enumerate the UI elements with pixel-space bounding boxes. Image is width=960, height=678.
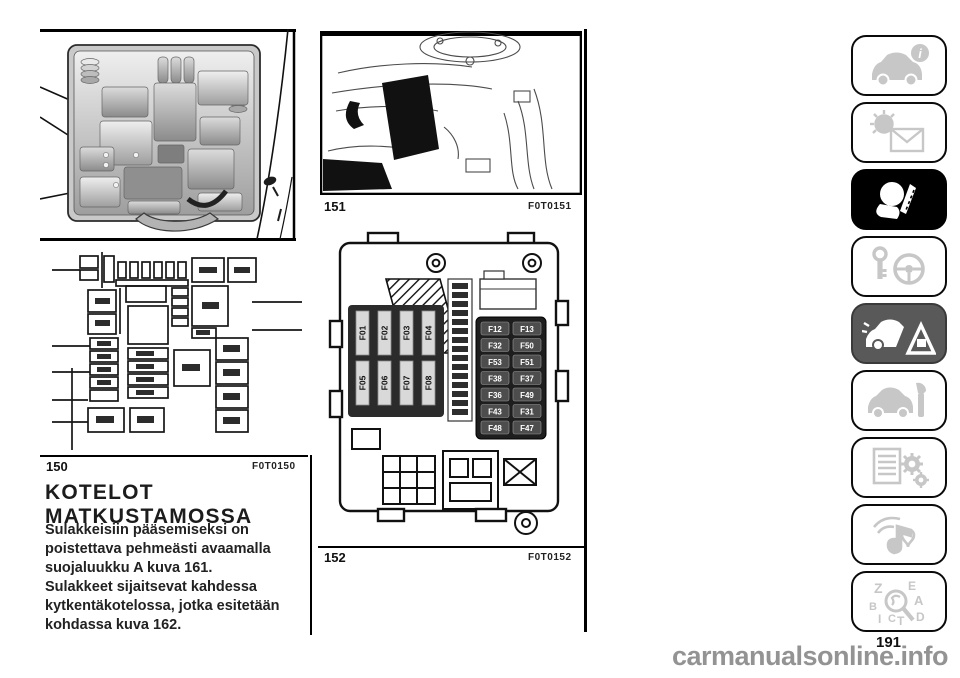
fuse-label: F32 xyxy=(488,342,502,351)
multimedia-icon xyxy=(864,511,934,559)
sidebar-item-service[interactable] xyxy=(851,370,947,431)
fuse-label: F12 xyxy=(488,325,502,334)
paragraph-line: Sulakkeet sijaitsevat kahdessa xyxy=(45,578,290,597)
section-paragraph: Sulakkeisiin pääsemiseksi on poistettava… xyxy=(45,521,290,635)
caption-rule-150 xyxy=(40,455,308,457)
fuse-label: F01 xyxy=(358,325,368,340)
fuse-label: F07 xyxy=(402,375,412,390)
index-letter: E xyxy=(908,579,916,593)
watermark-link[interactable]: carmanualsonline.info xyxy=(672,641,948,672)
index-letter: C xyxy=(888,613,896,625)
dashboard-underside-drawing xyxy=(320,31,582,195)
caption-rule-152 xyxy=(318,546,584,548)
sidebar-item-lights-messages[interactable] xyxy=(851,102,947,163)
column-divider-left xyxy=(310,455,312,635)
sidebar-item-technical-data[interactable] xyxy=(851,437,947,498)
fuse-label: F08 xyxy=(424,375,434,390)
fuse-label: F31 xyxy=(520,408,534,417)
info-badge-letter: i xyxy=(918,46,922,61)
paragraph-line: Sulakkeisiin pääsemiseksi on xyxy=(45,521,290,540)
manual-page: 150 F0T0150 KOTELOT MATKUSTAMOSSA Sulakk… xyxy=(0,0,960,678)
fuse-label: F37 xyxy=(520,375,534,384)
service-wrench-icon xyxy=(864,377,934,425)
paragraph-line: suojaluukku A kuva 161. xyxy=(45,559,290,578)
paragraph-line: poistettava pehmeästi avaamalla xyxy=(45,540,290,559)
fuse-label: F49 xyxy=(520,391,534,400)
sidebar-item-safety[interactable] xyxy=(851,169,947,230)
sidebar-item-starting-driving[interactable] xyxy=(851,236,947,297)
sidebar-item-index[interactable]: Z E B A C T D I xyxy=(851,571,947,632)
fuse-label: F50 xyxy=(520,342,534,351)
index-letter: I xyxy=(878,612,881,626)
index-letter: D xyxy=(916,610,925,624)
technical-data-icon xyxy=(864,444,934,492)
fuse-label: F05 xyxy=(358,375,368,390)
paragraph-line: kytkentäkotelossa, jotka esitetään xyxy=(45,597,290,616)
lights-messages-icon xyxy=(864,109,934,157)
figure-code-152: F0T0152 xyxy=(528,552,572,563)
fuse-label: F03 xyxy=(402,325,412,340)
fuse-label: F48 xyxy=(488,424,502,433)
paragraph-line: kohdassa kuva 162. xyxy=(45,616,290,635)
index-letter: A xyxy=(914,593,924,608)
fuse-label: F47 xyxy=(520,424,534,433)
index-letter: B xyxy=(869,601,877,613)
fuse-label: F04 xyxy=(424,325,434,340)
index-letter: T xyxy=(897,614,905,627)
ignition-steering-icon xyxy=(864,243,934,291)
passenger-fusebox-diagram: F01 F02 F03 F04 F05 F06 F07 F08 xyxy=(328,221,580,545)
sidebar-item-emergency[interactable] xyxy=(851,303,947,364)
figure-code-150: F0T0150 xyxy=(252,461,296,472)
car-info-icon: i xyxy=(864,42,934,90)
figure-code-151: F0T0151 xyxy=(528,201,572,212)
fuse-label: F53 xyxy=(488,358,502,367)
fuse-label: F38 xyxy=(488,375,502,384)
index-letter: Z xyxy=(874,580,883,596)
figure-number-152: 152 xyxy=(324,550,346,565)
safety-airbag-icon xyxy=(864,176,934,224)
emergency-icon xyxy=(862,309,936,359)
right-fuse-block: F12 F13 F32 F50 F53 F51 F38 F37 F36 F49 … xyxy=(476,317,546,439)
figure-number-151: 151 xyxy=(324,199,346,214)
alphabetical-index-icon: Z E B A C T D I xyxy=(864,577,934,627)
column-divider-middle xyxy=(584,29,587,632)
sidebar-item-vehicle-info[interactable]: i xyxy=(851,35,947,96)
engine-fusebox-schematic xyxy=(52,250,302,452)
figure-number-150: 150 xyxy=(46,459,68,474)
fuse-label: F06 xyxy=(380,375,390,390)
section-title-line1: KOTELOT xyxy=(45,481,252,505)
fuse-label: F43 xyxy=(488,408,502,417)
fuse-label: F13 xyxy=(520,325,534,334)
sidebar-item-multimedia[interactable] xyxy=(851,504,947,565)
engine-fusebox-illustration xyxy=(40,29,296,241)
left-fuse-block: F01 F02 F03 F04 F05 F06 F07 F08 xyxy=(348,305,444,417)
fuse-label: F36 xyxy=(488,391,502,400)
fuse-label: F02 xyxy=(380,325,390,340)
fuse-label: F51 xyxy=(520,358,534,367)
